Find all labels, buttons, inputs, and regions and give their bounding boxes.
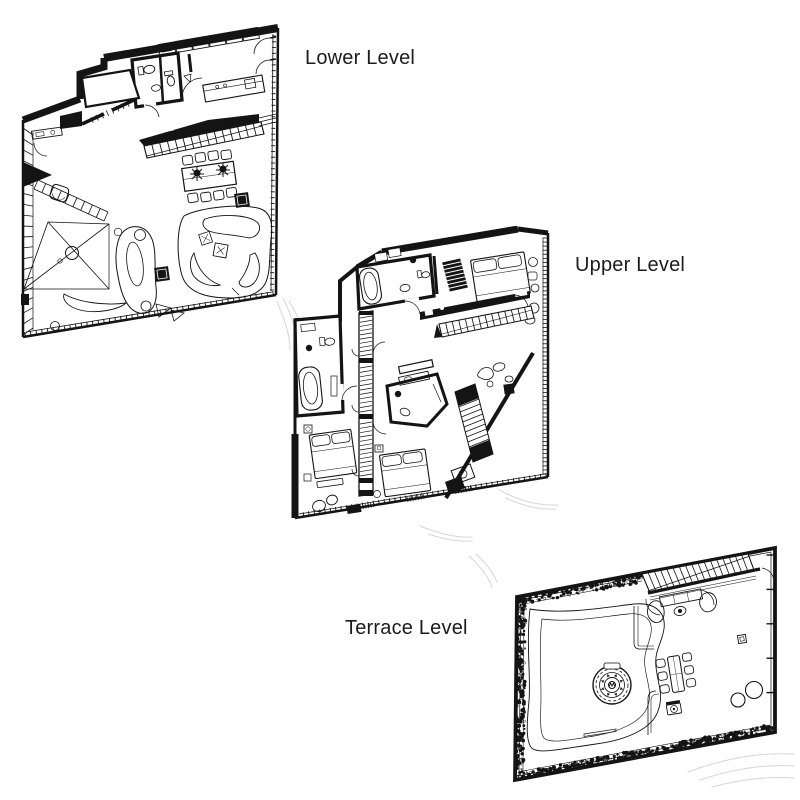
floorplan-sheet: Lower Level Upper Level Terrace Level [0, 0, 800, 800]
cube-table [234, 192, 250, 208]
terrace-level-plan [508, 543, 785, 790]
lower-level-floorplan [8, 10, 293, 350]
cube-table [154, 266, 170, 282]
lower-level-label: Lower Level [305, 46, 415, 70]
centerpiece [216, 163, 230, 177]
lower-level-plan [8, 10, 293, 350]
upper-level-label: Upper Level [575, 253, 685, 277]
centerpiece [190, 167, 204, 181]
terrace-level-floorplan [508, 543, 785, 790]
upper-level-floorplan [287, 226, 553, 524]
terrace-level-label: Terrace Level [345, 616, 468, 640]
upper-level-plan [287, 226, 553, 524]
